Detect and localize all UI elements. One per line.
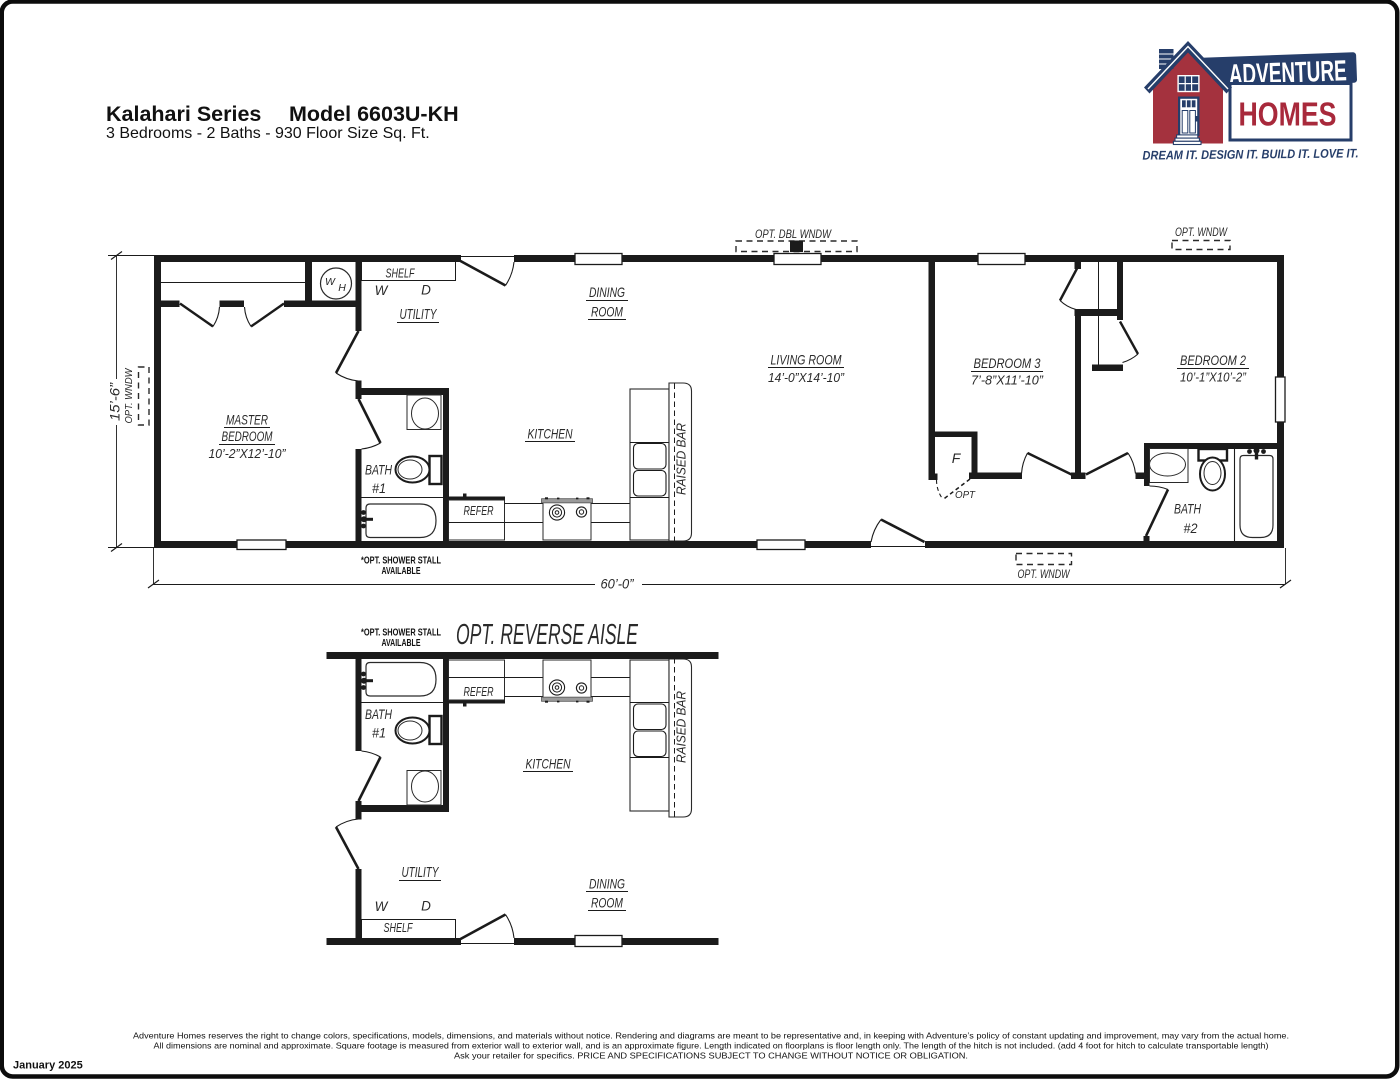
svg-text:14’-0”X14’-10”: 14’-0”X14’-10”	[768, 370, 845, 385]
svg-text:H: H	[338, 282, 346, 294]
svg-text:W: W	[325, 276, 336, 288]
svg-text:MASTER: MASTER	[226, 412, 268, 428]
svg-text:ROOM: ROOM	[591, 304, 623, 320]
svg-text:KITCHEN: KITCHEN	[526, 756, 572, 772]
svg-text:RAISED BAR: RAISED BAR	[674, 691, 689, 763]
svg-text:*OPT. SHOWER STALL: *OPT. SHOWER STALL	[361, 628, 441, 639]
svg-text:OPT. DBL WNDW: OPT. DBL WNDW	[755, 227, 832, 241]
svg-text:Kalahari Series: Kalahari Series	[106, 102, 261, 126]
svg-text:BEDROOM: BEDROOM	[222, 428, 273, 444]
svg-text:D: D	[421, 899, 431, 914]
svg-text:OPT. WNDW: OPT. WNDW	[123, 368, 135, 424]
svg-text:ROOM: ROOM	[591, 895, 623, 911]
svg-text:Model 6603U-KH: Model 6603U-KH	[289, 102, 459, 126]
svg-text:#1: #1	[372, 480, 386, 496]
svg-text:Ask your retailer for specific: Ask your retailer for specifics. PRICE A…	[454, 1051, 968, 1061]
svg-text:SHELF: SHELF	[386, 267, 416, 281]
svg-text:60’-0”: 60’-0”	[601, 577, 634, 592]
svg-text:10’-2”X12’-10”: 10’-2”X12’-10”	[209, 446, 287, 461]
svg-text:*OPT. SHOWER STALL: *OPT. SHOWER STALL	[361, 556, 441, 567]
svg-text:OPT. REVERSE AISLE: OPT. REVERSE AISLE	[456, 619, 638, 651]
svg-text:LIVING ROOM: LIVING ROOM	[771, 352, 842, 368]
svg-text:BATH: BATH	[1174, 501, 1202, 517]
svg-text:BEDROOM 2: BEDROOM 2	[1180, 352, 1246, 368]
svg-text:3 Bedrooms - 2 Baths - 930 Flo: 3 Bedrooms - 2 Baths - 930 Floor Size Sq…	[106, 125, 430, 142]
svg-text:10’-1”X10’-2”: 10’-1”X10’-2”	[1180, 370, 1247, 385]
svg-text:UTILITY: UTILITY	[402, 865, 440, 881]
svg-text:AVAILABLE: AVAILABLE	[382, 638, 421, 649]
svg-text:DREAM IT. DESIGN IT. BUILD I: DREAM IT. DESIGN IT. BUILD IT. LOVE IT.	[1142, 146, 1358, 162]
svg-text:HOMES: HOMES	[1239, 97, 1337, 134]
svg-text:RAISED BAR: RAISED BAR	[674, 423, 689, 495]
svg-text:15’-6”: 15’-6”	[108, 382, 123, 421]
svg-text:REFER: REFER	[464, 684, 494, 699]
svg-text:UTILITY: UTILITY	[400, 307, 438, 323]
svg-text:7’-8”X11’-10”: 7’-8”X11’-10”	[971, 373, 1044, 388]
svg-text:SHELF: SHELF	[384, 921, 414, 935]
svg-text:OPT: OPT	[955, 490, 976, 501]
svg-text:W: W	[375, 283, 389, 298]
svg-text:BATH: BATH	[365, 462, 393, 478]
svg-text:D: D	[421, 283, 431, 298]
svg-text:BATH: BATH	[365, 706, 393, 722]
svg-text:Adventure Homes reserves the r: Adventure Homes reserves the right to ch…	[133, 1031, 1289, 1041]
svg-text:OPT. WNDW: OPT. WNDW	[1175, 225, 1228, 239]
svg-text:AVAILABLE: AVAILABLE	[382, 566, 421, 577]
svg-text:January 2025: January 2025	[13, 1060, 83, 1072]
svg-text:BEDROOM 3: BEDROOM 3	[974, 355, 1041, 371]
svg-text:All dimensions are nominal and: All dimensions are nominal and approxima…	[154, 1041, 1269, 1051]
svg-text:OPT. WNDW: OPT. WNDW	[1018, 567, 1071, 581]
svg-text:#2: #2	[1184, 520, 1198, 536]
svg-text:REFER: REFER	[464, 503, 494, 518]
svg-text:F: F	[952, 450, 962, 466]
svg-text:#1: #1	[372, 725, 386, 741]
svg-text:KITCHEN: KITCHEN	[528, 426, 574, 442]
svg-text:DINING: DINING	[589, 876, 625, 892]
svg-text:DINING: DINING	[589, 284, 625, 300]
svg-text:W: W	[375, 899, 389, 914]
